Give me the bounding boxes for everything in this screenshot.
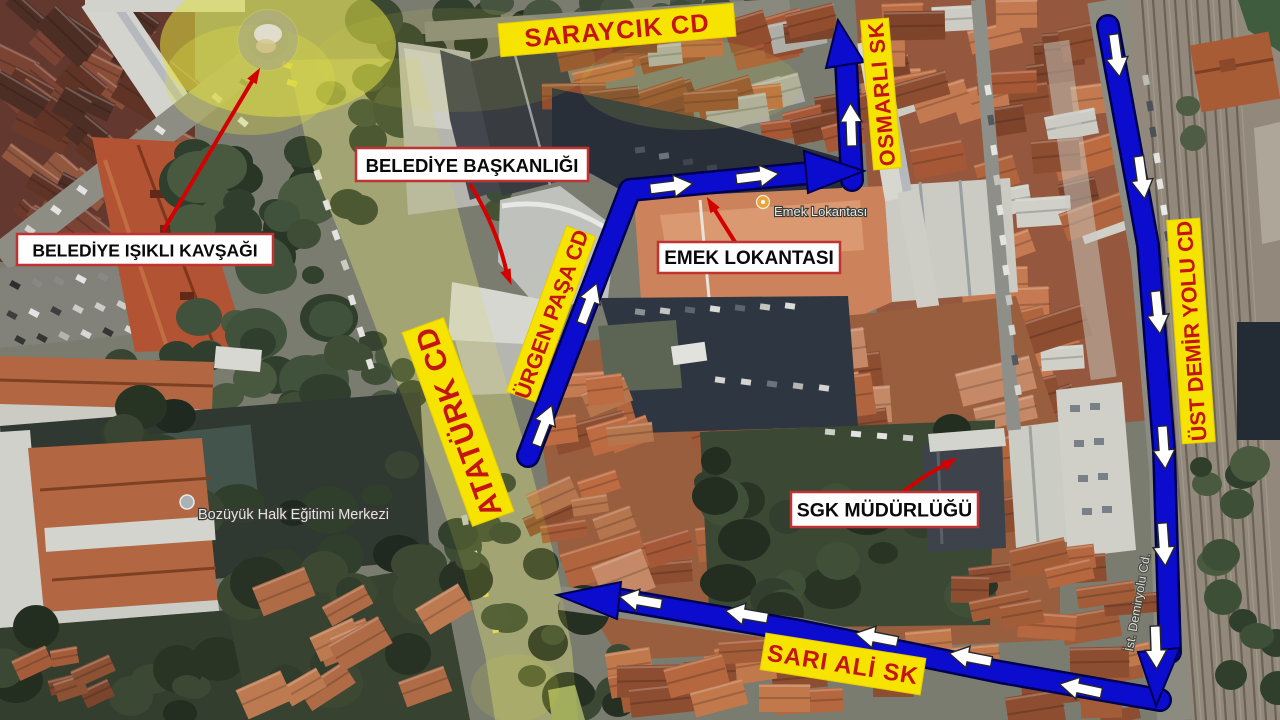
svg-text:SGK MÜDÜRLÜĞÜ: SGK MÜDÜRLÜĞÜ bbox=[797, 499, 973, 522]
svg-text:BELEDİYE BAŞKANLIĞI: BELEDİYE BAŞKANLIĞI bbox=[366, 155, 579, 176]
svg-text:Emek Lokantası: Emek Lokantası bbox=[774, 204, 867, 219]
svg-text:Bozüyük Halk Eğitimi Merkezi: Bozüyük Halk Eğitimi Merkezi bbox=[198, 507, 389, 523]
svg-text:BELEDİYE IŞIKLI KAVŞAĞI: BELEDİYE IŞIKLI KAVŞAĞI bbox=[32, 240, 257, 261]
svg-text:EMEK LOKANTASI: EMEK LOKANTASI bbox=[664, 248, 834, 269]
